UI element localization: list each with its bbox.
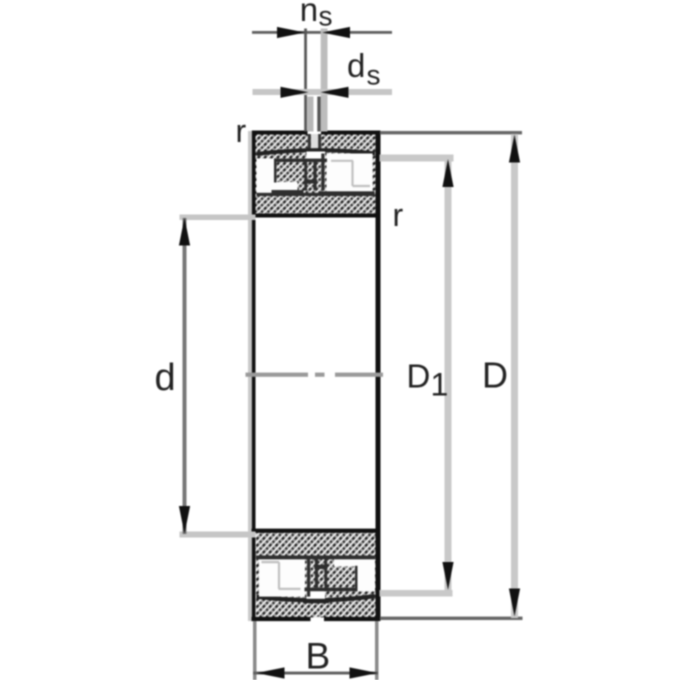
svg-text:1: 1 — [431, 367, 449, 403]
svg-text:s: s — [367, 60, 381, 91]
svg-text:D: D — [482, 355, 508, 396]
svg-text:d: d — [155, 357, 176, 399]
svg-text:B: B — [306, 636, 331, 677]
svg-text:r: r — [236, 113, 247, 149]
svg-text:D: D — [407, 358, 431, 395]
svg-text:n: n — [300, 0, 318, 28]
svg-text:d: d — [347, 47, 365, 84]
svg-text:s: s — [319, 1, 333, 32]
svg-text:r: r — [393, 197, 404, 233]
